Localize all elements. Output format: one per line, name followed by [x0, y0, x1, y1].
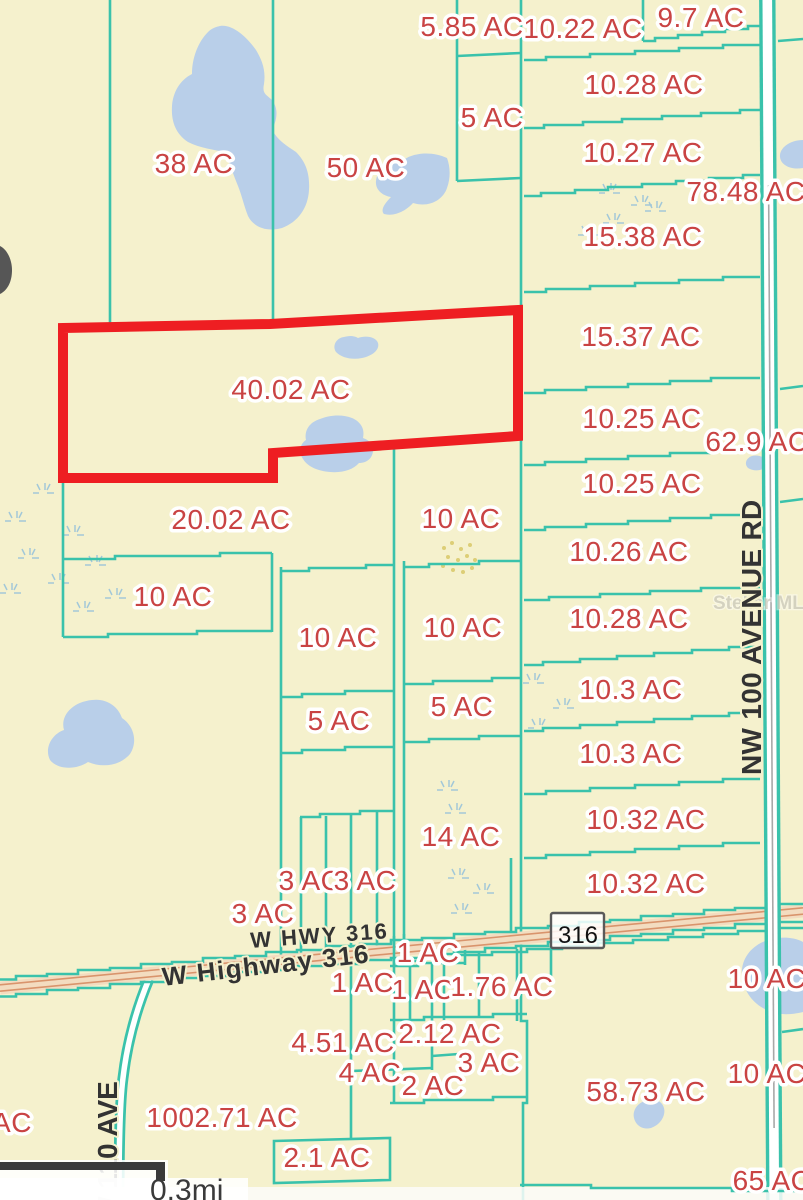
- svg-text:62.9 AC: 62.9 AC: [705, 426, 803, 457]
- svg-text:9.7 AC: 9.7 AC: [657, 2, 744, 33]
- svg-text:1 AC: 1 AC: [332, 967, 395, 998]
- svg-text:15.37 AC: 15.37 AC: [581, 321, 700, 352]
- svg-text:50 AC: 50 AC: [327, 152, 406, 183]
- svg-text:10.32 AC: 10.32 AC: [586, 804, 705, 835]
- svg-text:3 AC: 3 AC: [279, 865, 342, 896]
- svg-text:65 AC: 65 AC: [733, 1165, 803, 1196]
- svg-text:14 AC: 14 AC: [422, 821, 501, 852]
- svg-text:58.73 AC: 58.73 AC: [586, 1076, 705, 1107]
- svg-text:4 AC: 4 AC: [339, 1057, 402, 1088]
- svg-text:10.3 AC: 10.3 AC: [579, 674, 682, 705]
- svg-text:0.3mi: 0.3mi: [150, 1174, 223, 1200]
- svg-text:AC: AC: [0, 1107, 32, 1138]
- svg-text:1 AC: 1 AC: [392, 974, 455, 1005]
- svg-text:15.38 AC: 15.38 AC: [583, 221, 702, 252]
- svg-text:2 AC: 2 AC: [402, 1070, 465, 1101]
- svg-text:4.51 AC: 4.51 AC: [291, 1027, 394, 1058]
- svg-text:1 AC: 1 AC: [397, 937, 460, 968]
- svg-text:40.02 AC: 40.02 AC: [231, 374, 350, 405]
- svg-text:10.28 AC: 10.28 AC: [569, 603, 688, 634]
- svg-text:10 AC: 10 AC: [134, 581, 213, 612]
- svg-text:10.25 AC: 10.25 AC: [582, 403, 701, 434]
- svg-text:20.02 AC: 20.02 AC: [171, 504, 290, 535]
- svg-text:3 AC: 3 AC: [334, 865, 397, 896]
- svg-text:10 AC: 10 AC: [728, 963, 803, 994]
- svg-text:5.85 AC: 5.85 AC: [420, 11, 523, 42]
- svg-text:3 AC: 3 AC: [232, 898, 295, 929]
- svg-text:10.27 AC: 10.27 AC: [583, 137, 702, 168]
- svg-text:10.3 AC: 10.3 AC: [579, 738, 682, 769]
- svg-text:316: 316: [558, 922, 598, 949]
- svg-text:78.48 AC: 78.48 AC: [686, 176, 803, 207]
- svg-text:2.12 AC: 2.12 AC: [398, 1018, 501, 1049]
- svg-text:5 AC: 5 AC: [431, 691, 494, 722]
- svg-text:5 AC: 5 AC: [308, 705, 371, 736]
- svg-text:10.26 AC: 10.26 AC: [569, 536, 688, 567]
- svg-text:1002.71 AC: 1002.71 AC: [146, 1102, 297, 1133]
- svg-text:NW 100 AVENUE RD: NW 100 AVENUE RD: [736, 499, 767, 775]
- svg-text:2.1 AC: 2.1 AC: [283, 1142, 370, 1173]
- svg-text:10.28 AC: 10.28 AC: [584, 69, 703, 100]
- svg-text:10.32 AC: 10.32 AC: [586, 868, 705, 899]
- svg-text:10.25 AC: 10.25 AC: [582, 468, 701, 499]
- svg-text:1.76 AC: 1.76 AC: [450, 971, 553, 1002]
- svg-text:10 AC: 10 AC: [424, 612, 503, 643]
- svg-text:5 AC: 5 AC: [461, 102, 524, 133]
- svg-text:3 AC: 3 AC: [458, 1047, 521, 1078]
- svg-text:10 AC: 10 AC: [299, 622, 378, 653]
- svg-text:10 AC: 10 AC: [422, 503, 501, 534]
- svg-text:10 AC: 10 AC: [728, 1058, 803, 1089]
- svg-text:38 AC: 38 AC: [155, 148, 234, 179]
- svg-text:10.22 AC: 10.22 AC: [523, 13, 642, 44]
